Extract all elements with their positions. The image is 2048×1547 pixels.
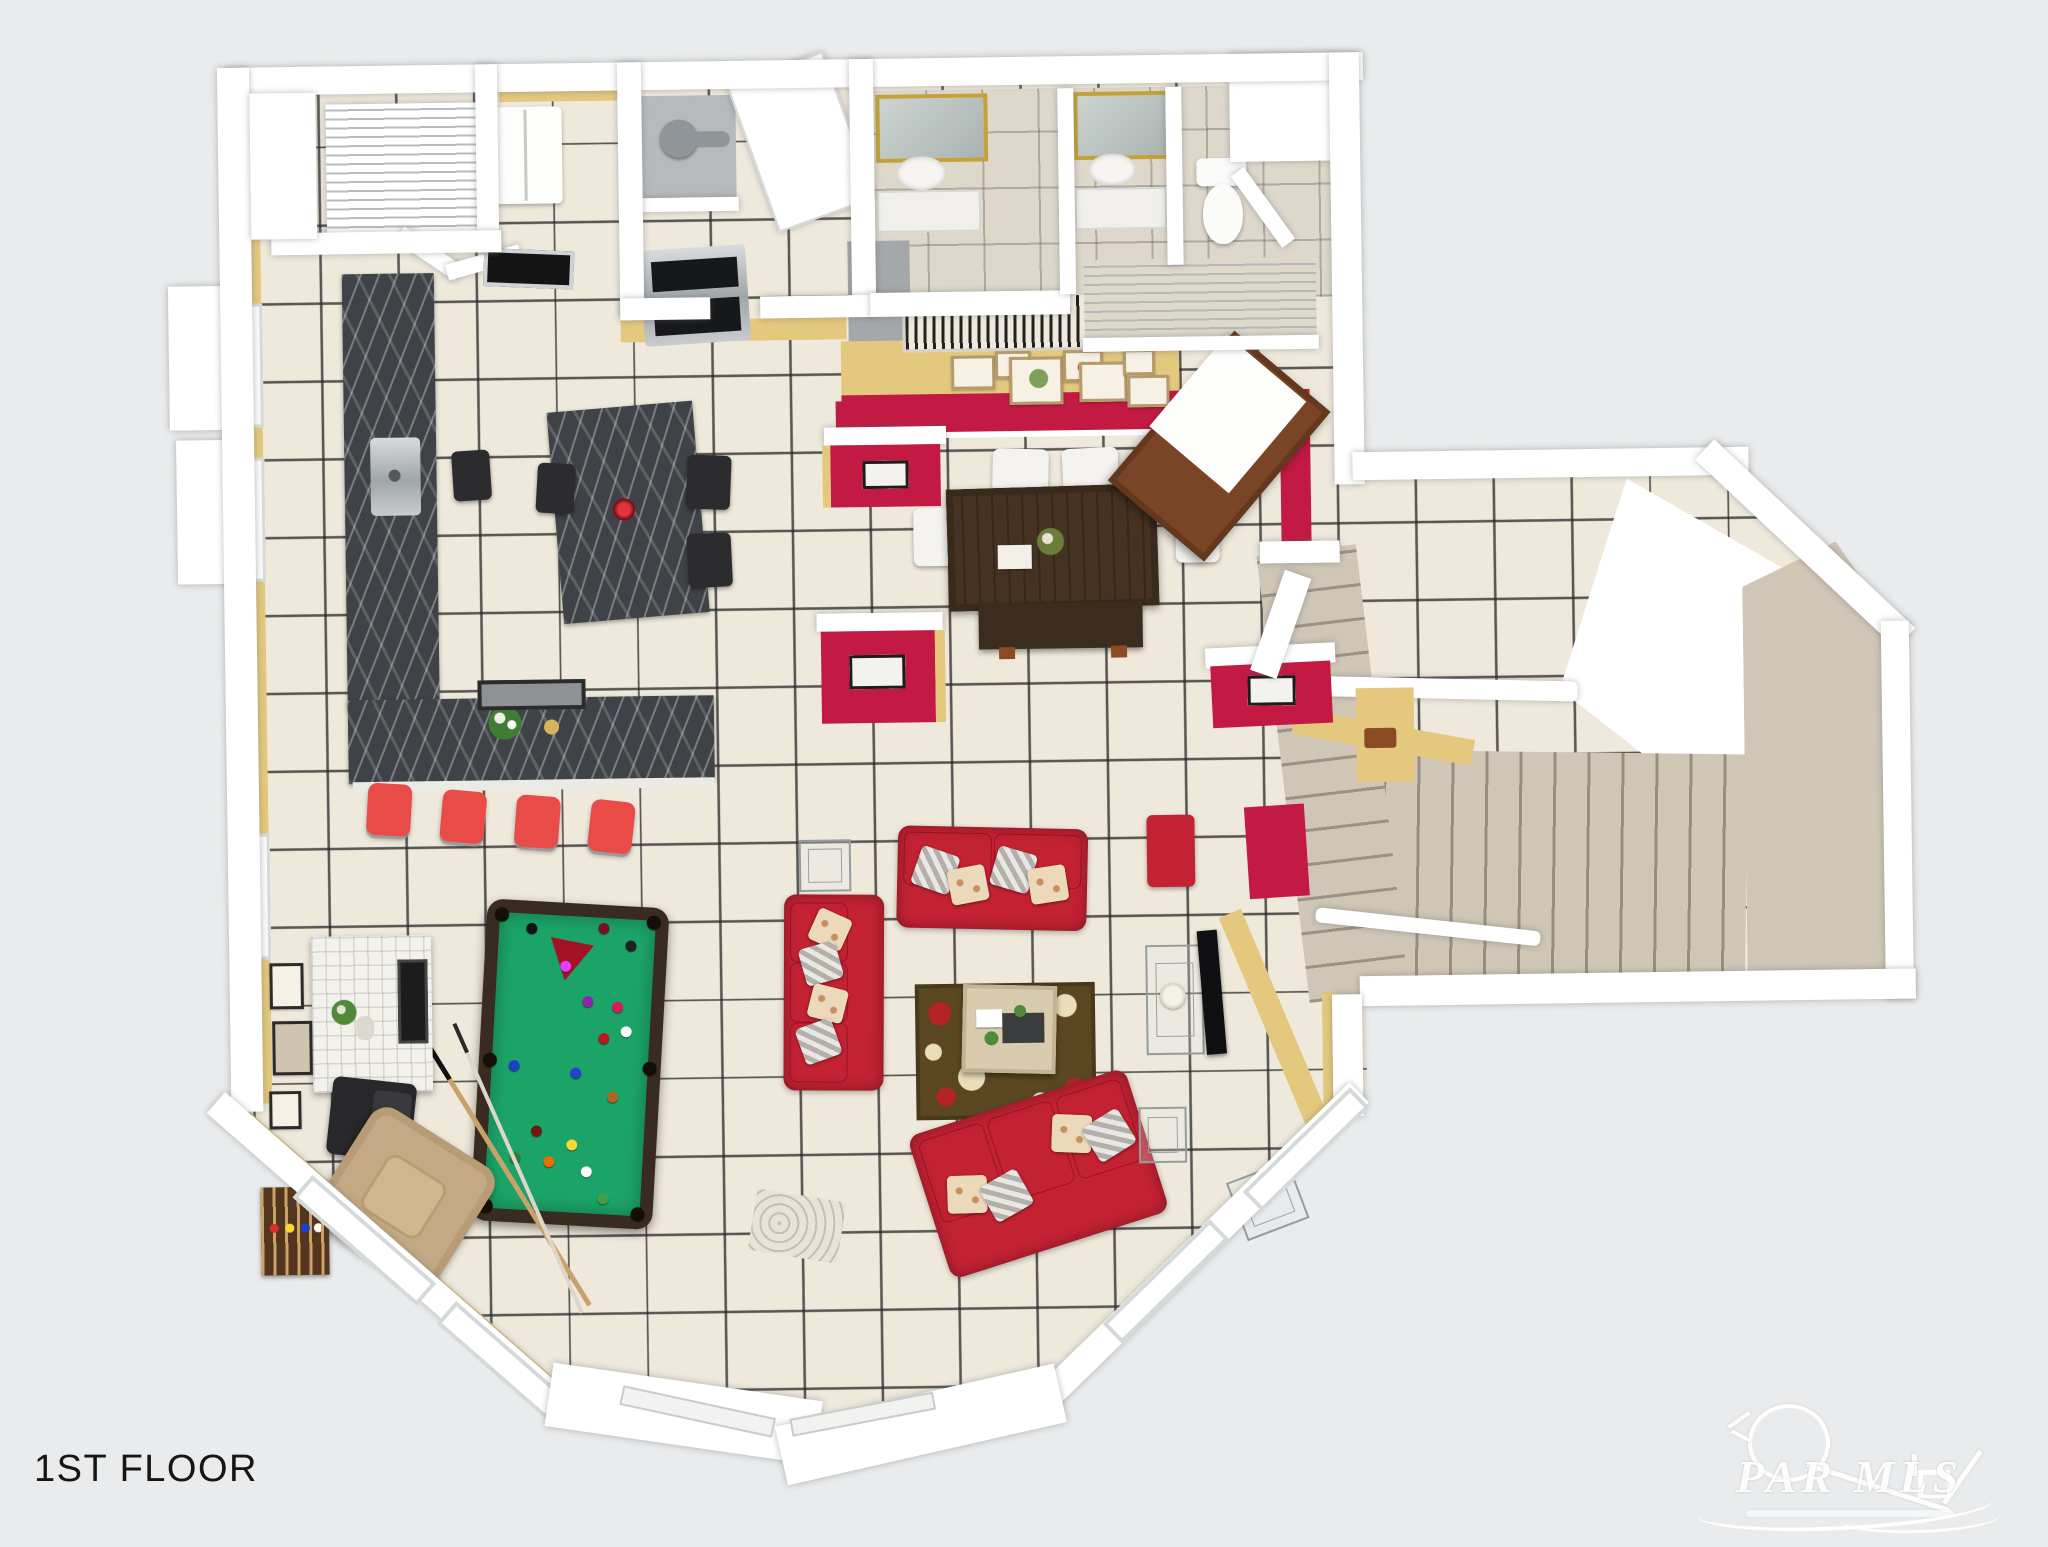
bar-stool-red — [439, 789, 488, 845]
partial-wall-cap — [817, 612, 943, 632]
wall-hall-bottom-left — [620, 297, 710, 320]
picture-frame — [1127, 375, 1169, 408]
wall-hall-bottom-right — [760, 295, 876, 319]
partial-wall-plaque — [1247, 675, 1295, 706]
peninsula-cup — [544, 719, 559, 734]
island-stool — [686, 454, 732, 510]
wall-pantry-left-block — [249, 93, 317, 240]
floor-title: 1ST FLOOR — [34, 1448, 258, 1491]
pub-menu-board — [397, 959, 428, 1043]
sofa-loveseat — [896, 825, 1088, 931]
pool-table — [470, 898, 670, 1230]
side-table-glass — [799, 839, 852, 892]
wall-vanity-wc — [1057, 88, 1076, 294]
throw-pillow — [1027, 864, 1070, 905]
bench-foot — [999, 647, 1015, 659]
picture-frame — [1009, 356, 1064, 405]
picture-frame — [1079, 361, 1128, 402]
ottoman-red — [1146, 815, 1195, 888]
partial-wall-side — [935, 630, 946, 722]
dining-bench — [978, 601, 1143, 649]
vanity-mirror — [1073, 91, 1174, 160]
picture-frame — [269, 1091, 302, 1129]
coffee-table-card — [976, 1009, 1002, 1027]
partial-wall-side — [822, 446, 831, 508]
utility-wall — [639, 197, 739, 212]
wall-hall-bath — [849, 59, 877, 313]
sink-faucet — [388, 470, 400, 482]
floor-plan — [0, 0, 2048, 1547]
bar-stool-red — [587, 798, 636, 854]
coffee-table-plant — [1014, 1005, 1026, 1017]
toilet-bowl — [1203, 184, 1244, 245]
island-stool — [535, 462, 576, 514]
watermark: PAR MLS — [1690, 1398, 2006, 1536]
picture-frame — [269, 963, 304, 1009]
pub-vase — [356, 1016, 374, 1040]
picture-frame — [1123, 349, 1155, 375]
picture-frame — [951, 355, 995, 390]
wall-foyer-top — [1352, 447, 1748, 481]
bench-foot — [1111, 645, 1127, 657]
picture-frame — [272, 1021, 313, 1076]
partial-wall-plaque — [862, 460, 908, 489]
sofa-left — [783, 894, 884, 1090]
coffee-table-tray — [1002, 1013, 1044, 1044]
coffee-table-plant — [984, 1031, 998, 1045]
wire-closet — [1084, 257, 1317, 340]
floor-plan-image: 1ST FLOOR PAR MLS — [0, 0, 2048, 1536]
wall-pantry-right — [475, 64, 500, 252]
wall-foyer-right — [1881, 621, 1914, 999]
bird-icon — [1727, 1411, 1751, 1429]
foyer-decor — [1364, 728, 1396, 748]
cooktop — [483, 248, 574, 289]
wall-bath-bottom — [870, 290, 1070, 317]
stair-red-rug — [1244, 803, 1310, 899]
island-stool — [686, 532, 733, 588]
foyer-wall-stub — [1260, 540, 1340, 563]
oven-glass-upper — [651, 257, 739, 293]
wall-right-upper — [1329, 52, 1365, 484]
vanity-cabinet — [1075, 187, 1168, 230]
island-stool — [451, 449, 492, 501]
pool-pocket — [646, 915, 661, 930]
peninsula-art — [477, 679, 585, 711]
wall-wc-right — [1165, 87, 1183, 265]
cue-rack-balls — [269, 1223, 321, 1234]
water-heater-elbow — [692, 131, 730, 148]
wall-kitchen-hall — [617, 62, 645, 316]
dining-placemat — [998, 545, 1032, 569]
partial-wall-cap — [824, 426, 946, 446]
vanity-cabinet — [877, 189, 982, 232]
partial-wall-plaque — [849, 655, 905, 690]
throw-pillow — [946, 864, 990, 906]
bar-stool-red — [514, 794, 562, 849]
pool-pocket — [642, 1061, 657, 1076]
bar-stool-red — [366, 783, 413, 837]
pantry-closet — [325, 102, 481, 246]
wall-foyer-bottom — [1360, 968, 1916, 1006]
pool-pocket — [630, 1207, 645, 1222]
side-table-glass — [1138, 1107, 1187, 1164]
vanity-mirror — [875, 93, 988, 163]
